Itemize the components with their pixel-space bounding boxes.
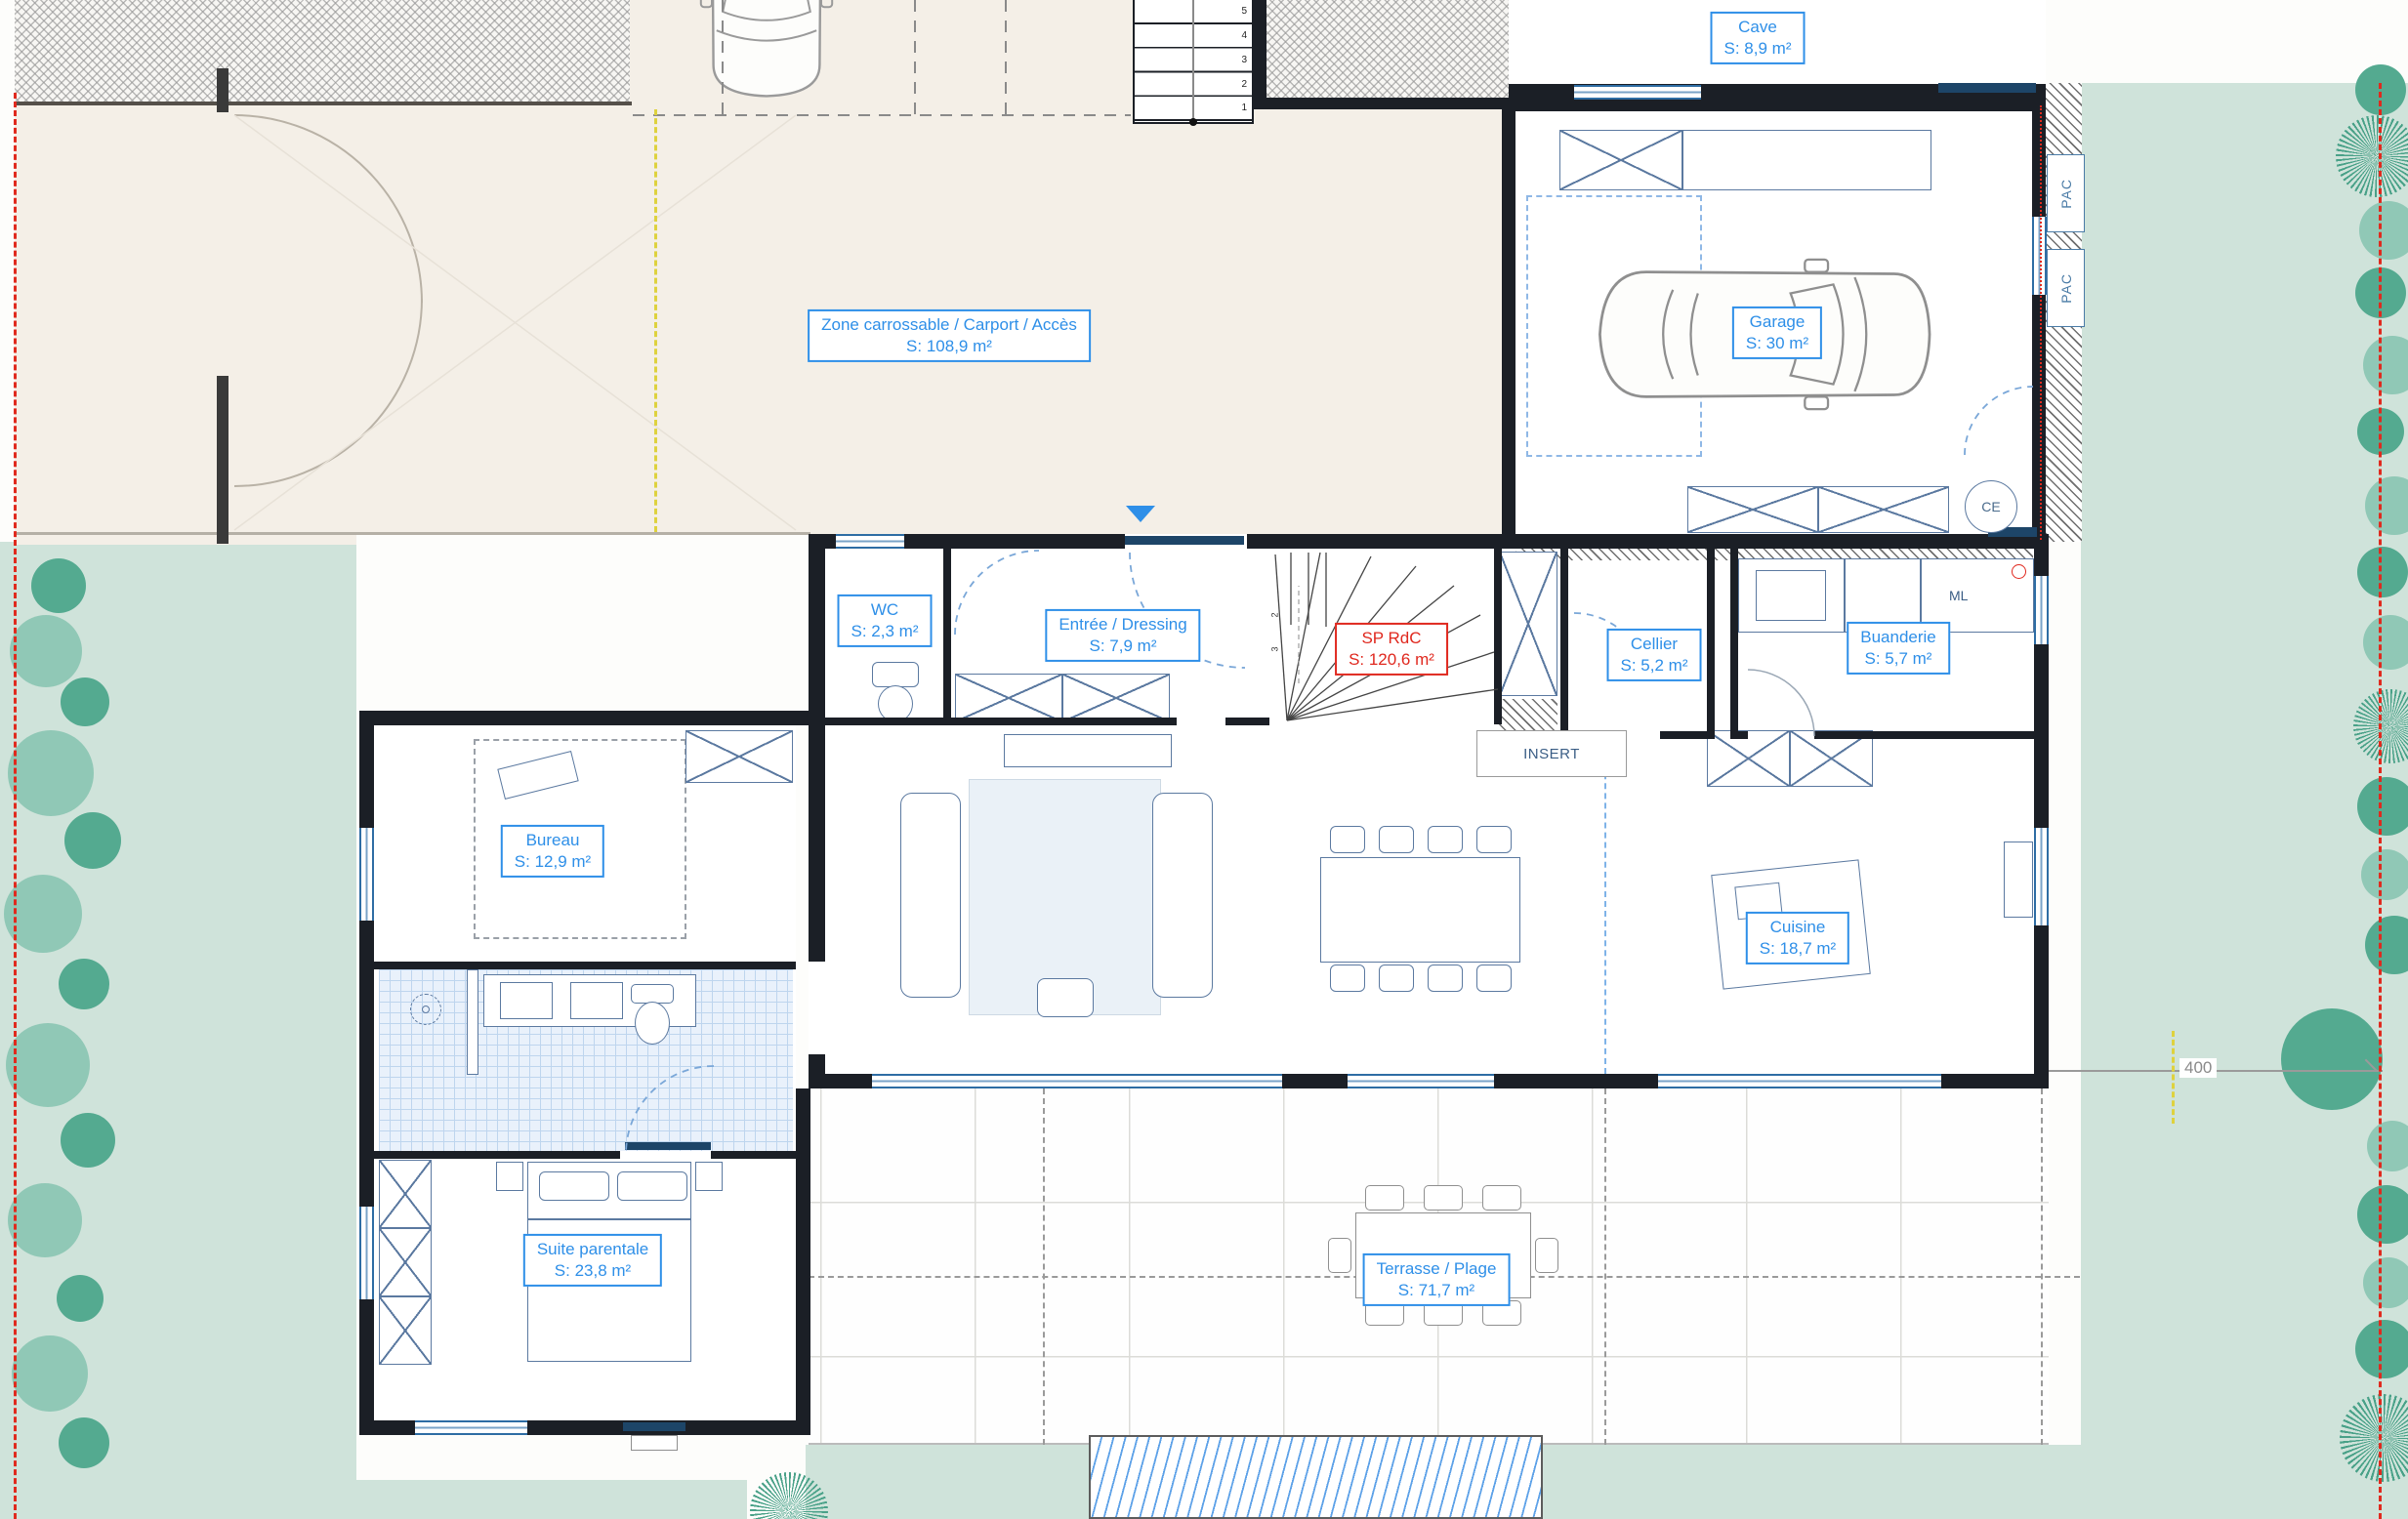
room-label-garage: Garage S: 30 m² bbox=[1732, 307, 1822, 359]
room-label-buanderie: Buanderie S: 5,7 m² bbox=[1847, 622, 1950, 675]
exterior-stairs: 5 4 3 2 1 bbox=[1133, 0, 1254, 124]
wall-stair-right bbox=[1494, 549, 1502, 724]
dining-window bbox=[1348, 1074, 1494, 1088]
suite-door-step bbox=[631, 1435, 678, 1451]
room-name: Bureau bbox=[515, 830, 591, 851]
neighbour-hatch-left bbox=[15, 0, 630, 105]
garage-top-wall bbox=[1502, 98, 2046, 111]
garage-counter-crossed-right bbox=[1818, 486, 1949, 533]
tree bbox=[8, 730, 94, 816]
tree bbox=[31, 558, 86, 613]
tree bbox=[57, 1275, 104, 1322]
stair-step-number: 1 bbox=[1241, 103, 1247, 113]
tree bbox=[10, 615, 82, 687]
wing-right-wall bbox=[796, 1088, 810, 1430]
dining-chair bbox=[1379, 826, 1414, 853]
gate-post-lower bbox=[217, 376, 228, 544]
dining-chair bbox=[1428, 826, 1463, 853]
garage-storage-crossed bbox=[1559, 130, 1682, 190]
tree bbox=[64, 812, 121, 869]
living-bay-window bbox=[872, 1074, 1282, 1088]
pool bbox=[1089, 1435, 1543, 1519]
water-heater-ce: CE bbox=[1965, 480, 2017, 533]
room-name: Cellier bbox=[1621, 634, 1688, 655]
dining-table bbox=[1320, 857, 1520, 963]
wall-buanderie-left bbox=[1730, 549, 1738, 739]
nightstand-right bbox=[695, 1162, 723, 1191]
suite-wardrobe bbox=[379, 1228, 432, 1296]
wall-cellier-left bbox=[1560, 549, 1568, 739]
room-area: S: 30 m² bbox=[1746, 333, 1808, 354]
garden-right bbox=[2046, 83, 2408, 1519]
axis-line-yellow bbox=[654, 109, 657, 532]
cave-window bbox=[1574, 85, 1701, 100]
room-name: Cave bbox=[1724, 17, 1792, 38]
stair-step-number: 2 bbox=[1270, 612, 1280, 617]
room-area: S: 12,9 m² bbox=[515, 851, 591, 873]
shower-drain bbox=[410, 994, 441, 1025]
tree bbox=[2357, 1185, 2408, 1244]
driveway-edge-line bbox=[15, 532, 810, 535]
spiky-shrub bbox=[2336, 115, 2408, 197]
wing-top-wall bbox=[359, 711, 809, 725]
dining-chair bbox=[1476, 826, 1512, 853]
pac-label: PAC bbox=[2058, 179, 2074, 209]
property-boundary-right bbox=[2379, 83, 2382, 1519]
room-label-terrasse-plage: Terrasse / Plage S: 71,7 m² bbox=[1363, 1253, 1511, 1306]
tree bbox=[61, 1113, 115, 1168]
terrace-chair bbox=[1365, 1185, 1404, 1211]
suite-door-leaf bbox=[623, 1422, 685, 1431]
suite-bottom-window bbox=[415, 1420, 527, 1435]
garage-right-wall bbox=[2032, 98, 2046, 547]
fridge bbox=[2004, 842, 2033, 918]
kitchen-bay-window bbox=[1658, 1074, 1941, 1088]
wall-wc-entree bbox=[943, 549, 951, 724]
room-label-entree-dressing: Entrée / Dressing S: 7,9 m² bbox=[1045, 609, 1200, 662]
boundary-wall-top bbox=[15, 102, 632, 105]
room-label-sp-rdc: SP RdC S: 120,6 m² bbox=[1335, 623, 1448, 676]
tree bbox=[8, 1183, 82, 1257]
bureau-window bbox=[359, 828, 374, 921]
entree-wardrobe-right bbox=[1062, 674, 1170, 722]
tv-console bbox=[1004, 734, 1172, 767]
ml-label: ML bbox=[1949, 588, 1968, 603]
pac-unit-1: PAC bbox=[2047, 154, 2085, 232]
room-area: S: 5,7 m² bbox=[1860, 648, 1936, 670]
wc-window bbox=[836, 534, 904, 549]
wall-bureau-bath bbox=[374, 962, 796, 969]
buanderie-marker-ring bbox=[2012, 564, 2026, 579]
room-area: S: 18,7 m² bbox=[1760, 938, 1836, 960]
wall-hatch-bottom bbox=[1253, 98, 1511, 109]
terrace-chair bbox=[1328, 1238, 1351, 1273]
tree bbox=[12, 1335, 88, 1412]
wall-buanderie-bottom-b bbox=[1814, 731, 2034, 739]
dining-chair bbox=[1428, 965, 1463, 992]
living-kitchen-open-boundary bbox=[1604, 734, 1606, 1074]
dining-chair bbox=[1476, 965, 1512, 992]
room-area: S: 108,9 m² bbox=[821, 336, 1077, 357]
room-name: Terrasse / Plage bbox=[1377, 1258, 1497, 1280]
wall-stairs-right bbox=[1253, 0, 1266, 109]
room-name: Zone carrossable / Carport / Accès bbox=[821, 314, 1077, 336]
sofa-left bbox=[900, 793, 961, 998]
dining-chair bbox=[1330, 826, 1365, 853]
terrace-joint-v bbox=[1043, 1088, 1045, 1445]
bath-toilet-bowl bbox=[635, 1002, 670, 1045]
floor-plan-canvas: 5 4 3 2 1 CE bbox=[0, 0, 2408, 1519]
room-label-cave: Cave S: 8,9 m² bbox=[1711, 12, 1806, 64]
pac-unit-2: PAC bbox=[2047, 249, 2085, 327]
terrace-chair bbox=[1482, 1185, 1521, 1211]
pouf bbox=[1037, 978, 1094, 1017]
tree bbox=[2355, 1320, 2408, 1378]
sink-right bbox=[570, 982, 623, 1019]
insert-fireplace: INSERT bbox=[1476, 730, 1627, 777]
stair-duct-crossed bbox=[1499, 552, 1557, 696]
house-left-wall-stub bbox=[809, 1054, 825, 1079]
tree bbox=[59, 1417, 109, 1468]
nightstand-left bbox=[496, 1162, 523, 1191]
room-area: S: 23,8 m² bbox=[537, 1260, 648, 1282]
driveway-left-extension bbox=[15, 105, 356, 545]
dining-chair bbox=[1330, 965, 1365, 992]
stair-step-number: 4 bbox=[1241, 30, 1247, 41]
insert-label: INSERT bbox=[1523, 746, 1580, 762]
blanket-line bbox=[528, 1218, 690, 1220]
tree bbox=[2361, 849, 2408, 900]
stair-duct-hatch bbox=[1499, 699, 1557, 732]
wall-bath-suite-a bbox=[374, 1151, 620, 1159]
property-boundary-left bbox=[14, 93, 17, 1519]
dimension-value: 400 bbox=[2180, 1058, 2217, 1078]
kitchen-side-window bbox=[2034, 828, 2049, 925]
garden-bottom-left bbox=[356, 1480, 747, 1519]
suite-window bbox=[359, 1207, 374, 1299]
pillow-right bbox=[617, 1171, 687, 1201]
axis-line-yellow-short bbox=[2172, 1031, 2175, 1124]
stair-start-dot bbox=[1189, 118, 1197, 126]
tree bbox=[2357, 777, 2408, 836]
bureau-wardrobe bbox=[685, 730, 793, 783]
room-area: S: 71,7 m² bbox=[1377, 1280, 1497, 1301]
sink-left bbox=[500, 982, 553, 1019]
stair-step-number: 5 bbox=[1241, 6, 1247, 17]
wall-buanderie-bottom-a bbox=[1730, 731, 1748, 739]
cave-sill bbox=[1938, 83, 2036, 93]
room-label-bureau: Bureau S: 12,9 m² bbox=[501, 825, 604, 878]
pac-label: PAC bbox=[2058, 273, 2074, 304]
room-name: SP RdC bbox=[1349, 628, 1434, 649]
garage-storage-shelf bbox=[1682, 130, 1931, 190]
room-label-suite-parentale: Suite parentale S: 23,8 m² bbox=[523, 1234, 662, 1287]
stair-step-number: 2 bbox=[1241, 79, 1247, 90]
hallway-opening bbox=[809, 962, 825, 1054]
bath-toilet-tank bbox=[631, 984, 674, 1004]
wc-toilet-tank bbox=[872, 662, 919, 687]
room-label-zone-carrossable: Zone carrossable / Carport / Accès S: 10… bbox=[808, 309, 1091, 362]
garage-left-wall bbox=[1502, 98, 1515, 547]
tree bbox=[2357, 547, 2408, 597]
wall-entree-living bbox=[825, 718, 1177, 725]
wall-cellier-right bbox=[1707, 549, 1715, 739]
room-name: WC bbox=[851, 599, 919, 621]
terrace-chair bbox=[1424, 1185, 1463, 1211]
room-label-wc: WC S: 2,3 m² bbox=[838, 595, 933, 647]
side-path bbox=[2046, 542, 2081, 1445]
house-top-wall bbox=[809, 534, 2049, 549]
entrance-door-leaf bbox=[1125, 536, 1244, 545]
counter-divider bbox=[1844, 558, 1846, 633]
entrance-marker-triangle bbox=[1126, 506, 1155, 522]
stair-step-number: 3 bbox=[1241, 55, 1247, 65]
boundary-dotted-garage bbox=[2040, 105, 2042, 540]
tree bbox=[59, 959, 109, 1009]
room-name: Cuisine bbox=[1760, 917, 1836, 938]
terrace-chair bbox=[1535, 1238, 1558, 1273]
gate-post-upper bbox=[217, 68, 228, 112]
suite-wardrobe bbox=[379, 1296, 432, 1365]
room-name: Garage bbox=[1746, 311, 1808, 333]
terrace-joint-v bbox=[1604, 1088, 1606, 1445]
buanderie-window bbox=[2034, 576, 2049, 644]
room-area: S: 5,2 m² bbox=[1621, 655, 1688, 677]
neighbour-hatch-right bbox=[1255, 0, 1511, 107]
room-label-cuisine: Cuisine S: 18,7 m² bbox=[1746, 912, 1849, 965]
wall-cellier-bottom-b bbox=[1660, 731, 1715, 739]
wing-left-wall bbox=[359, 711, 374, 1435]
tree bbox=[6, 1023, 90, 1107]
room-label-cellier: Cellier S: 5,2 m² bbox=[1607, 629, 1702, 681]
terrace-joint-v bbox=[2041, 1088, 2043, 1445]
wall-entree-living-stub bbox=[1225, 718, 1269, 725]
garage-counter-crossed-left bbox=[1687, 486, 1818, 533]
bathroom-door-sill bbox=[625, 1142, 711, 1150]
wall-bath-suite-b bbox=[711, 1151, 796, 1159]
washing-machine bbox=[1756, 570, 1826, 621]
room-area: S: 8,9 m² bbox=[1724, 38, 1792, 60]
tree bbox=[61, 677, 109, 726]
carport-car bbox=[684, 0, 850, 105]
sofa-right bbox=[1152, 793, 1213, 998]
kitchen-counter-crossed-a bbox=[1707, 730, 1790, 787]
tree bbox=[2363, 1257, 2408, 1308]
pillow-left bbox=[539, 1171, 609, 1201]
dining-chair bbox=[1379, 965, 1414, 992]
room-area: S: 120,6 m² bbox=[1349, 649, 1434, 671]
suite-wardrobe bbox=[379, 1160, 432, 1228]
entree-wardrobe-left bbox=[955, 674, 1062, 722]
house-left-wall bbox=[809, 549, 825, 968]
room-name: Buanderie bbox=[1860, 627, 1936, 648]
room-name: Entrée / Dressing bbox=[1059, 614, 1186, 636]
room-area: S: 2,3 m² bbox=[851, 621, 919, 642]
room-area: S: 7,9 m² bbox=[1059, 636, 1186, 657]
room-name: Suite parentale bbox=[537, 1239, 648, 1260]
stair-step-number: 3 bbox=[1270, 646, 1280, 651]
shower-screen bbox=[467, 969, 478, 1075]
ce-label: CE bbox=[1981, 499, 2000, 514]
